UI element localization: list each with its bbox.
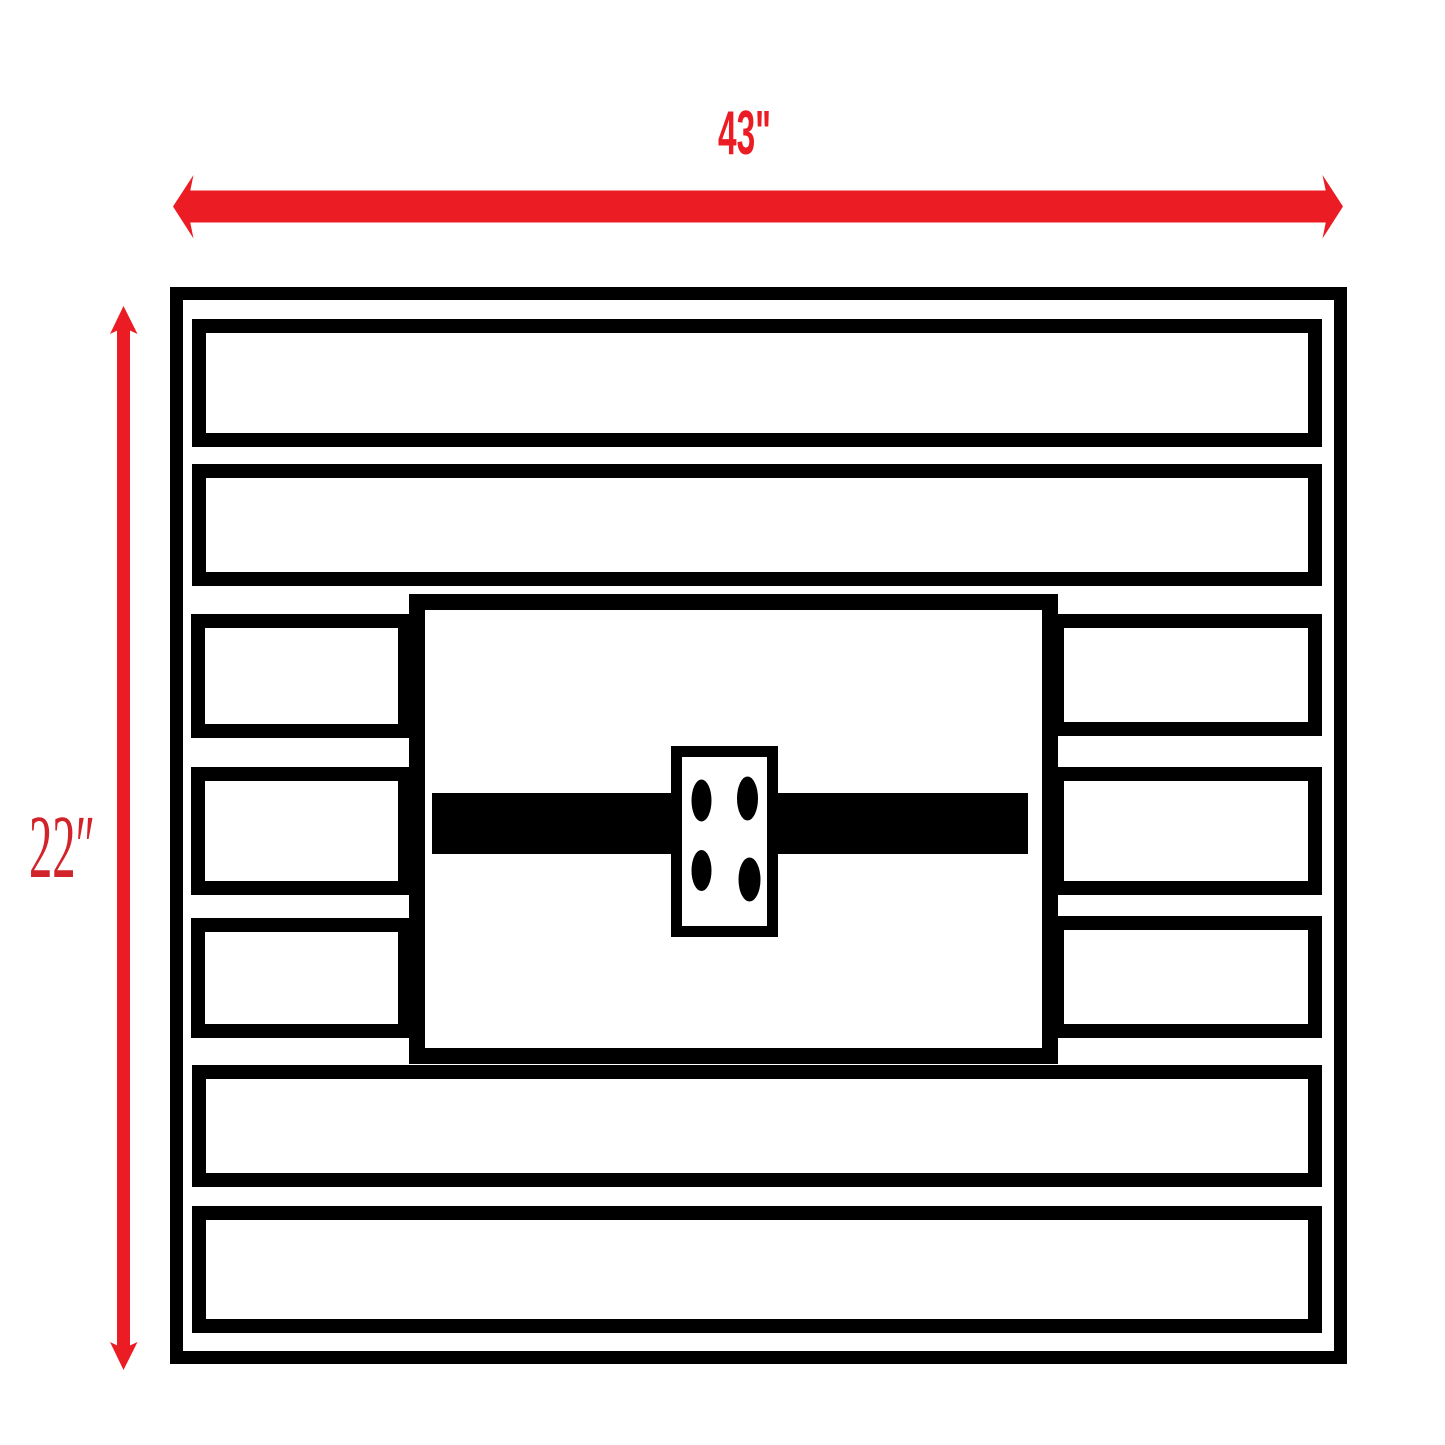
svg-text:22″: 22″ (29, 798, 95, 897)
svg-text:43": 43" (718, 98, 771, 168)
